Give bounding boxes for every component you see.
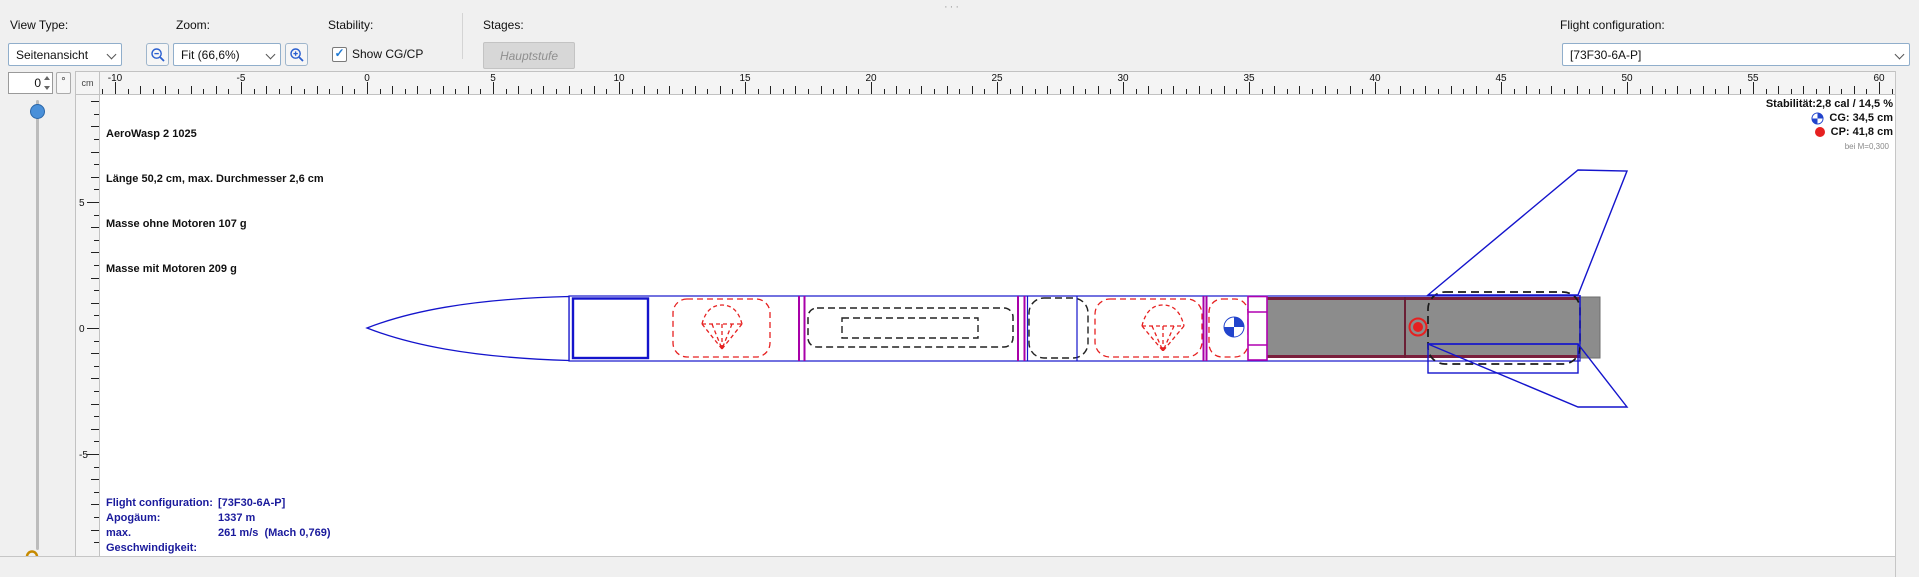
- chevron-down-icon: [266, 50, 276, 60]
- ruler-tick: [1337, 89, 1338, 94]
- stability-label: Stability:: [328, 18, 373, 32]
- ruler-tick: [1514, 89, 1515, 94]
- view-type-select[interactable]: Seitenansicht: [8, 43, 122, 66]
- ruler-tick: [1614, 89, 1615, 94]
- ruler-tick: [770, 86, 771, 94]
- ruler-tick: [87, 454, 99, 455]
- ruler-label: 30: [1110, 73, 1136, 84]
- ruler-tick: [91, 353, 99, 354]
- ruler-tick: [1589, 89, 1590, 94]
- cp-value: CP: 41,8 cm: [1831, 125, 1893, 139]
- nose-cone[interactable]: [367, 297, 569, 361]
- ruler-tick: [1299, 86, 1300, 94]
- cg-legend-icon: [1811, 112, 1824, 125]
- ruler-tick: [1098, 86, 1099, 94]
- ruler-tick: [934, 89, 935, 94]
- ruler-tick: [657, 89, 658, 94]
- ruler-tick: [94, 240, 99, 241]
- ruler-tick: [1740, 89, 1741, 94]
- ruler-tick: [228, 89, 229, 94]
- ruler-tick: [94, 441, 99, 442]
- horizontal-scrollbar[interactable]: [0, 556, 1895, 577]
- ruler-tick: [342, 86, 343, 94]
- rocket-figure: [100, 95, 1895, 556]
- ruler-tick: [1652, 86, 1653, 94]
- ruler-tick: [91, 303, 99, 304]
- ruler-tick: [644, 86, 645, 94]
- ruler-tick: [94, 517, 99, 518]
- ruler-tick: [165, 86, 166, 94]
- ruler-tick: [1766, 89, 1767, 94]
- ruler-tick: [1577, 86, 1578, 94]
- ruler-tick: [707, 89, 708, 94]
- ruler-tick: [1677, 86, 1678, 94]
- centering-rings[interactable]: [1248, 297, 1267, 361]
- ruler-tick: [1060, 89, 1061, 94]
- cp-legend-icon: [1814, 126, 1826, 138]
- ruler-tick: [543, 86, 544, 94]
- ruler-tick: [1539, 89, 1540, 94]
- ruler-tick: [91, 429, 99, 430]
- rotation-slider-track[interactable]: [36, 100, 39, 550]
- ruler-tick: [1224, 86, 1225, 94]
- ruler-tick: [984, 89, 985, 94]
- ruler-tick: [1551, 86, 1552, 94]
- ruler-tick: [354, 89, 355, 94]
- ruler-tick: [1526, 86, 1527, 94]
- ruler-tick: [91, 504, 99, 505]
- cg-marker: [1224, 317, 1244, 337]
- view-type-value: Seitenansicht: [16, 48, 88, 62]
- horizontal-ruler: -10-5051015202530354045505560: [100, 71, 1895, 95]
- ruler-tick: [91, 126, 99, 127]
- fin-upper[interactable]: [1428, 170, 1627, 295]
- rocket-name: AeroWasp 2 1025: [106, 127, 324, 142]
- ruler-tick: [153, 89, 154, 94]
- flight-info-label: Apogäum:: [106, 511, 218, 526]
- ruler-tick: [87, 202, 99, 203]
- ruler-label: 5: [480, 73, 506, 84]
- flight-info-value: 1337 m: [218, 511, 331, 526]
- ruler-tick: [1854, 86, 1855, 94]
- flight-info-label: Flight configuration:: [106, 496, 218, 511]
- chevron-down-icon: [107, 50, 117, 60]
- ruler-tick: [279, 89, 280, 94]
- ruler-tick: [1173, 86, 1174, 94]
- ruler-tick: [443, 86, 444, 94]
- ruler-tick: [91, 404, 99, 405]
- ruler-tick: [594, 86, 595, 94]
- ruler-tick: [1186, 89, 1187, 94]
- ruler-tick: [94, 492, 99, 493]
- ruler-tick: [1085, 89, 1086, 94]
- zoom-label: Zoom:: [176, 18, 210, 32]
- ruler-tick: [94, 265, 99, 266]
- ruler-tick: [972, 86, 973, 94]
- ruler-tick: [1778, 86, 1779, 94]
- ruler-tick: [1690, 89, 1691, 94]
- ruler-tick: [392, 86, 393, 94]
- ruler-tick: [91, 378, 99, 379]
- ruler-label: 60: [1866, 73, 1892, 84]
- ruler-tick: [430, 89, 431, 94]
- ruler-tick: [1362, 89, 1363, 94]
- ruler-tick: [1829, 86, 1830, 94]
- ruler-tick: [1035, 89, 1036, 94]
- zoom-in-icon: [289, 47, 305, 63]
- ruler-tick: [1148, 86, 1149, 94]
- rocket-mass-loaded: Masse mit Motoren 209 g: [106, 262, 324, 277]
- ruler-tick: [304, 89, 305, 94]
- ruler-tick: [896, 86, 897, 94]
- flight-info-value: [73F30-6A-P]: [218, 496, 331, 511]
- ruler-tick: [1425, 86, 1426, 94]
- view-toolbar: View Type: Seitenansicht Zoom: Fit (66,6…: [0, 0, 1919, 72]
- ruler-tick: [1476, 86, 1477, 94]
- flight-info-value: 261 m/s (Mach 0,769): [218, 526, 331, 556]
- chevron-down-icon: [1895, 50, 1905, 60]
- ruler-tick: [1413, 89, 1414, 94]
- ruler-tick: [1262, 89, 1263, 94]
- ruler-tick: [884, 89, 885, 94]
- ruler-tick: [1803, 86, 1804, 94]
- ruler-tick: [1110, 89, 1111, 94]
- rotation-angle-value: 0: [34, 76, 41, 90]
- zoom-out-icon: [150, 47, 166, 63]
- ruler-label: -5: [228, 73, 254, 84]
- ruler-tick: [921, 86, 922, 94]
- ruler-tick: [1211, 89, 1212, 94]
- ruler-tick: [94, 366, 99, 367]
- ruler-tick: [1866, 89, 1867, 94]
- ruler-tick: [1791, 89, 1792, 94]
- zoom-out-button[interactable]: [146, 43, 169, 66]
- ruler-tick: [94, 114, 99, 115]
- ruler-tick: [1438, 89, 1439, 94]
- ruler-tick: [128, 89, 129, 94]
- ruler-label: 0: [354, 73, 380, 84]
- flight-config-select[interactable]: [73F30-6A-P]: [1562, 43, 1910, 66]
- stability-value: Stabilität:2,8 cal / 14,5 %: [1766, 97, 1893, 111]
- ruler-tick: [569, 86, 570, 94]
- ruler-tick: [1274, 86, 1275, 94]
- ruler-tick: [140, 86, 141, 94]
- ruler-tick: [1236, 89, 1237, 94]
- ruler-tick: [94, 139, 99, 140]
- ruler-tick: [909, 89, 910, 94]
- rocket-dimensions: Länge 50,2 cm, max. Durchmesser 2,6 cm: [106, 172, 324, 187]
- ruler-tick: [266, 86, 267, 94]
- ruler-tick: [291, 86, 292, 94]
- zoom-in-button[interactable]: [285, 43, 308, 66]
- ruler-tick: [632, 89, 633, 94]
- ruler-tick: [783, 89, 784, 94]
- ruler-label: 15: [732, 73, 758, 84]
- ruler-tick: [91, 278, 99, 279]
- ruler-tick: [758, 89, 759, 94]
- ruler-tick: [405, 89, 406, 94]
- ruler-tick: [1287, 89, 1288, 94]
- ruler-tick: [216, 86, 217, 94]
- ruler-tick: [480, 89, 481, 94]
- splitter-handle-icon[interactable]: ···: [944, 1, 961, 13]
- rotation-unit-label: °: [56, 72, 71, 94]
- ruler-tick: [94, 315, 99, 316]
- ruler-tick: [1325, 86, 1326, 94]
- rotation-slider-handle[interactable]: [30, 104, 45, 119]
- stability-info-block: Stabilität:2,8 cal / 14,5 % CG: 34,5 cm …: [1766, 97, 1893, 139]
- ruler-tick: [468, 86, 469, 94]
- ruler-label: 20: [858, 73, 884, 84]
- ruler-label: 55: [1740, 73, 1766, 84]
- ruler-tick: [94, 215, 99, 216]
- ruler-tick: [531, 89, 532, 94]
- ruler-tick: [1640, 89, 1641, 94]
- ruler-tick: [94, 189, 99, 190]
- ruler-tick: [1388, 89, 1389, 94]
- show-cgcp-checkbox[interactable]: ✓: [332, 47, 347, 62]
- view-type-label: View Type:: [10, 18, 68, 32]
- stages-label: Stages:: [483, 18, 524, 32]
- ruler-tick: [203, 89, 204, 94]
- ruler-tick: [1841, 89, 1842, 94]
- ruler-tick: [380, 89, 381, 94]
- ruler-tick: [695, 86, 696, 94]
- ruler-tick: [959, 89, 960, 94]
- ruler-label: -5: [79, 450, 88, 461]
- ruler-tick: [682, 89, 683, 94]
- show-cgcp-label[interactable]: Show CG/CP: [352, 47, 423, 61]
- flight-config-value: [73F30-6A-P]: [1570, 48, 1641, 62]
- ruler-tick: [506, 89, 507, 94]
- ruler-tick: [808, 89, 809, 94]
- ruler-tick: [795, 86, 796, 94]
- flight-info-label: max. Geschwindigkeit:: [106, 526, 218, 556]
- ruler-unit-box: cm: [75, 71, 100, 95]
- ruler-tick: [91, 101, 99, 102]
- ruler-label: 10: [606, 73, 632, 84]
- cg-value: CG: 34,5 cm: [1829, 111, 1893, 125]
- ruler-tick: [191, 86, 192, 94]
- ruler-tick: [518, 86, 519, 94]
- spinner-arrows-icon[interactable]: [42, 74, 51, 92]
- ruler-tick: [1703, 86, 1704, 94]
- ruler-tick: [91, 152, 99, 153]
- ruler-tick: [94, 341, 99, 342]
- stage-toggle-button[interactable]: Hauptstufe: [483, 42, 575, 69]
- ruler-tick: [317, 86, 318, 94]
- zoom-level-value: Fit (66,6%): [181, 48, 240, 62]
- ruler-tick: [91, 479, 99, 480]
- ruler-label: 25: [984, 73, 1010, 84]
- ruler-tick: [94, 290, 99, 291]
- ruler-tick: [1602, 86, 1603, 94]
- ruler-tick: [732, 89, 733, 94]
- fin-set[interactable]: [1428, 170, 1627, 407]
- ruler-label: 35: [1236, 73, 1262, 84]
- ruler-label: 5: [79, 198, 85, 209]
- motor-overhang[interactable]: [1580, 297, 1600, 358]
- rocket-mass-empty: Masse ohne Motoren 107 g: [106, 217, 324, 232]
- motor-tube[interactable]: [1267, 297, 1580, 358]
- ruler-tick: [821, 86, 822, 94]
- openrocket-view-window: View Type: Seitenansicht Zoom: Fit (66,6…: [0, 0, 1919, 577]
- ruler-tick: [1136, 89, 1137, 94]
- rotation-angle-input[interactable]: 0: [8, 72, 53, 94]
- ruler-tick: [1047, 86, 1048, 94]
- ruler-tick: [1350, 86, 1351, 94]
- ruler-tick: [1488, 89, 1489, 94]
- ruler-tick: [91, 530, 99, 531]
- ruler-tick: [1816, 89, 1817, 94]
- ruler-tick: [329, 89, 330, 94]
- ruler-tick: [720, 86, 721, 94]
- ruler-tick: [1199, 86, 1200, 94]
- ruler-tick: [1892, 89, 1893, 94]
- ruler-label: 45: [1488, 73, 1514, 84]
- ruler-label: -10: [102, 73, 128, 84]
- ruler-tick: [87, 328, 99, 329]
- toolbar-separator: [462, 13, 463, 59]
- ruler-tick: [1715, 89, 1716, 94]
- ruler-tick: [947, 86, 948, 94]
- ruler-tick: [417, 86, 418, 94]
- ruler-tick: [1161, 89, 1162, 94]
- ruler-tick: [91, 252, 99, 253]
- ruler-tick: [178, 89, 179, 94]
- ruler-tick: [1022, 86, 1023, 94]
- ruler-tick: [581, 89, 582, 94]
- ruler-tick: [94, 416, 99, 417]
- ruler-tick: [1665, 89, 1666, 94]
- ruler-tick: [669, 86, 670, 94]
- ruler-tick: [94, 164, 99, 165]
- vertical-scrollbar[interactable]: [1895, 71, 1919, 577]
- ruler-label: 40: [1362, 73, 1388, 84]
- ruler-tick: [254, 89, 255, 94]
- rocket-canvas[interactable]: [100, 95, 1895, 556]
- ruler-tick: [1073, 86, 1074, 94]
- ruler-tick: [455, 89, 456, 94]
- ruler-tick: [1564, 89, 1565, 94]
- ruler-tick: [606, 89, 607, 94]
- ruler-tick: [94, 391, 99, 392]
- ruler-tick: [1451, 86, 1452, 94]
- ruler-tick: [91, 227, 99, 228]
- ruler-tick: [833, 89, 834, 94]
- ruler-tick: [1463, 89, 1464, 94]
- ruler-tick: [858, 89, 859, 94]
- ruler-tick: [1728, 86, 1729, 94]
- ruler-label: 0: [79, 324, 85, 335]
- zoom-level-select[interactable]: Fit (66,6%): [173, 43, 281, 66]
- ruler-tick: [1400, 86, 1401, 94]
- ruler-tick: [91, 177, 99, 178]
- ruler-tick: [556, 89, 557, 94]
- stability-condition: bei M=0,300: [1845, 142, 1889, 151]
- ruler-tick: [94, 542, 99, 543]
- vertical-ruler: 50-5: [75, 95, 100, 556]
- ruler-label: 50: [1614, 73, 1640, 84]
- ruler-tick: [1312, 89, 1313, 94]
- ruler-tick: [94, 467, 99, 468]
- ruler-tick: [102, 89, 103, 94]
- ruler-tick: [1010, 89, 1011, 94]
- rocket-info-block: AeroWasp 2 1025 Länge 50,2 cm, max. Durc…: [106, 97, 324, 307]
- ruler-tick: [846, 86, 847, 94]
- flight-config-label: Flight configuration:: [1560, 18, 1665, 32]
